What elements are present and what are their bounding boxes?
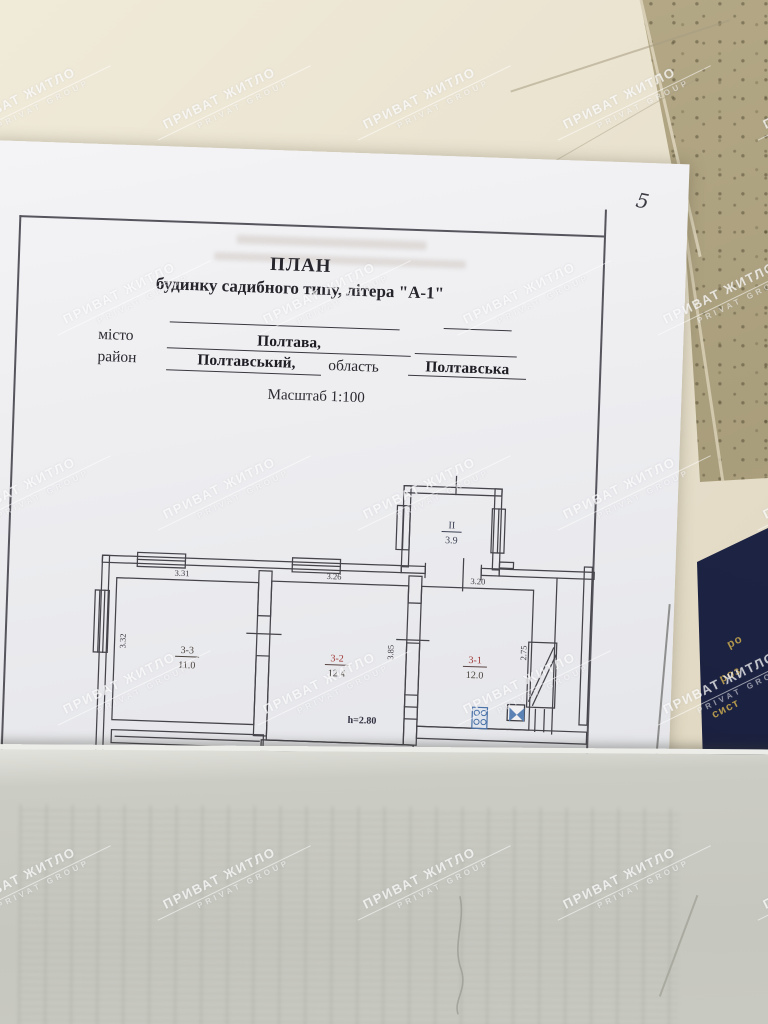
room-area: 12.4 (328, 668, 346, 680)
ceiling-height-label: h=2.80 (347, 715, 376, 727)
door-leaf (463, 559, 464, 591)
scale-label: Масштаб 1:100 (191, 384, 441, 410)
room-number: 3-2 (330, 653, 344, 664)
floor-plan-drawing: 3.31 3.26 3.20 3.32 3.85 2.75 II 3.9 3-3… (72, 461, 612, 789)
dimension-label: 3.32 (117, 633, 128, 648)
door-leaf (247, 633, 281, 634)
page-frame-top (19, 215, 604, 237)
folder-text-fragment: сист (710, 697, 742, 721)
folder-text-fragment: ро (725, 633, 745, 651)
dimension-label: 2.75 (518, 645, 529, 660)
ink-bleed-through (18, 804, 680, 1024)
pen-scribble (445, 892, 486, 1022)
city-underline (415, 352, 517, 358)
sink-icon (507, 704, 525, 722)
door-leaf (397, 640, 429, 641)
page-frame-left (1, 215, 21, 755)
plan-sheet: 5 ПЛАН будинку садибного типу, літера "А… (0, 140, 690, 814)
chimney-mark (456, 476, 457, 494)
threshold (499, 562, 513, 568)
region-label: область (328, 357, 379, 377)
district-label: район (97, 348, 137, 367)
dimension-label: 3.31 (174, 568, 189, 579)
ink-bleed-through (237, 235, 427, 251)
gas-stove-icon (472, 707, 488, 729)
blank-underline (444, 327, 512, 331)
room-area: 11.0 (178, 660, 196, 672)
room-area: 3.9 (445, 535, 458, 546)
room-area: 12.0 (466, 670, 484, 682)
dimension-label: 3.85 (385, 645, 396, 660)
dimension-label: 3.20 (470, 576, 485, 587)
folder-text-fragment: роз (718, 665, 744, 686)
room-number: 3-3 (180, 645, 194, 656)
room-number: 3-1 (468, 655, 482, 666)
page-number: 5 (634, 188, 651, 214)
blank-underline (170, 320, 400, 330)
dimension-label: 3.26 (326, 571, 341, 582)
room-number: II (448, 520, 455, 531)
overlapping-sheet (0, 744, 768, 1024)
city-label: місто (98, 326, 134, 345)
photo-of-floor-plan-document: ро роз сист 5 ПЛАН будинку садибного тип… (0, 0, 768, 1024)
